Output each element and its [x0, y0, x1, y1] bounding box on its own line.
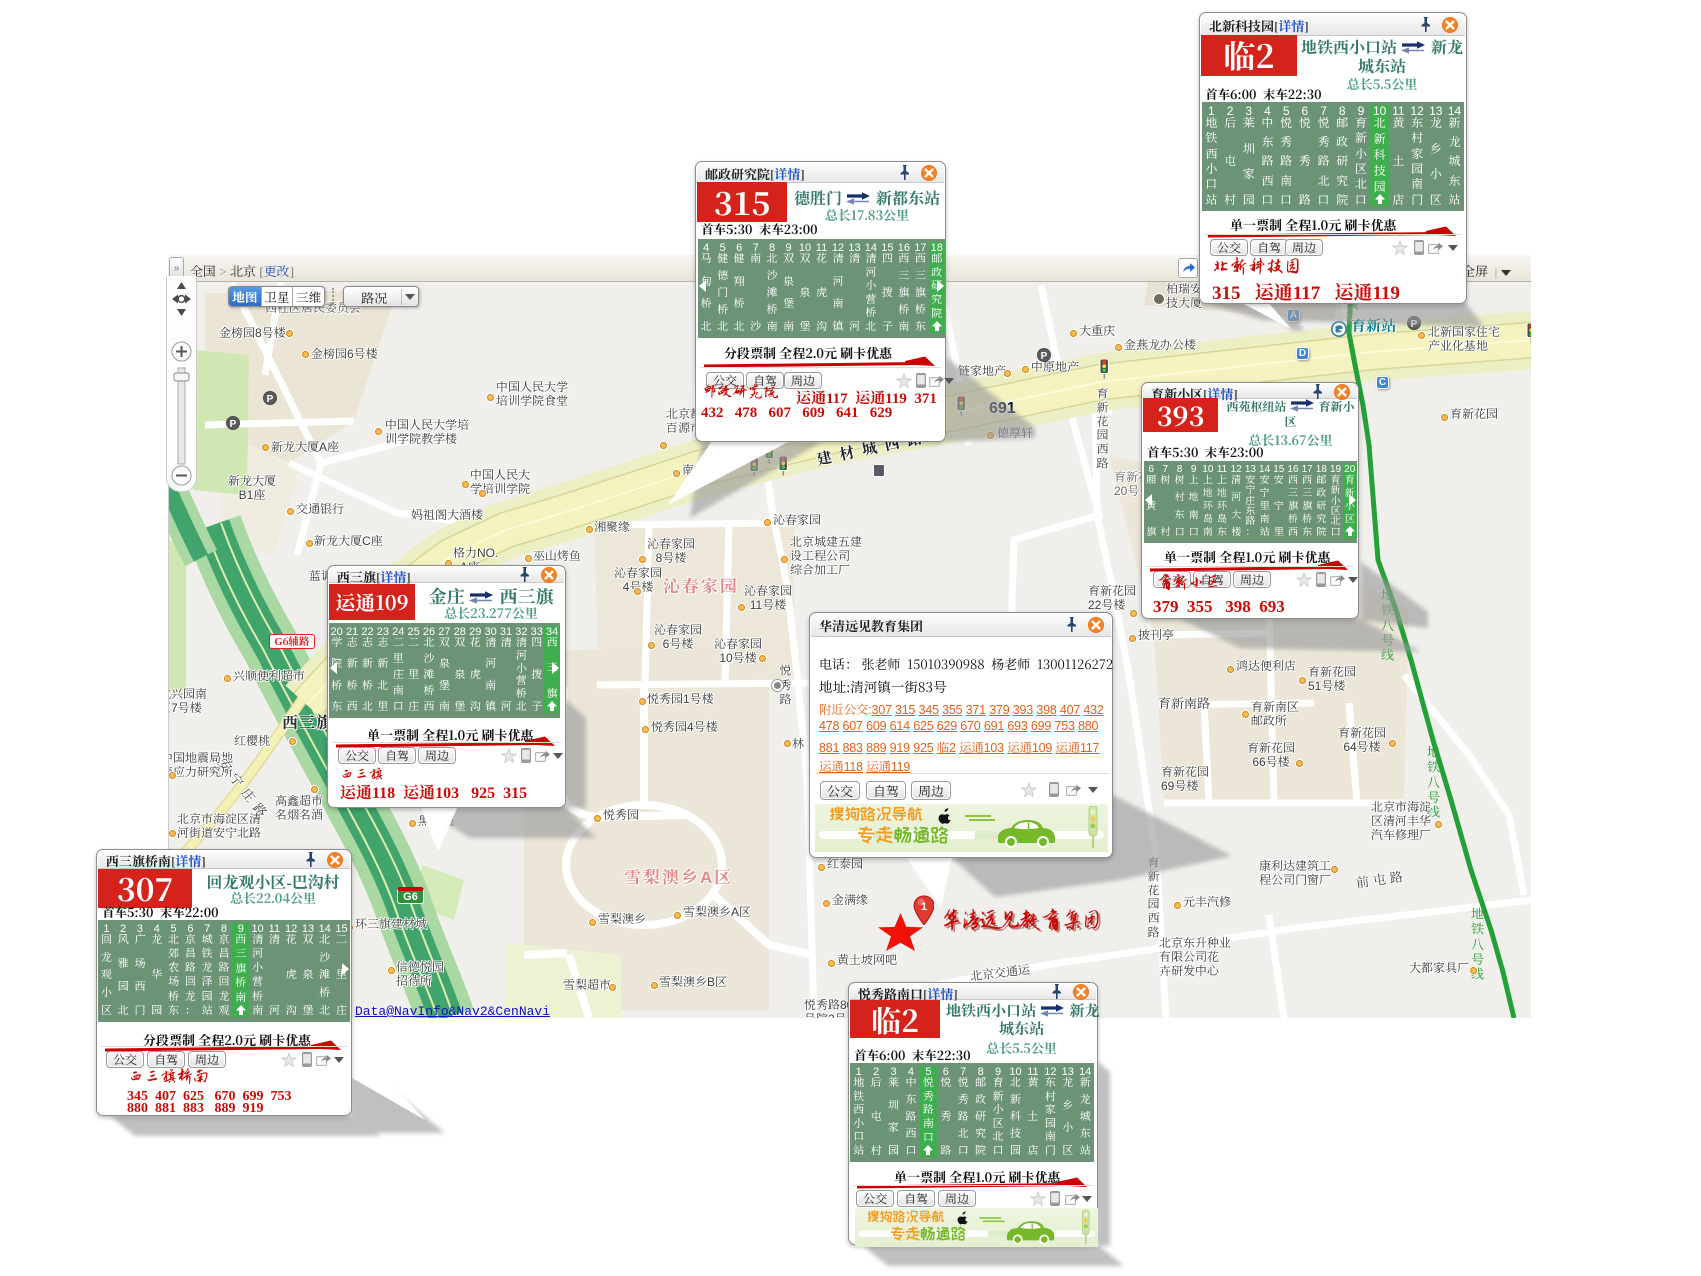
svg-text:1: 1	[921, 901, 927, 913]
